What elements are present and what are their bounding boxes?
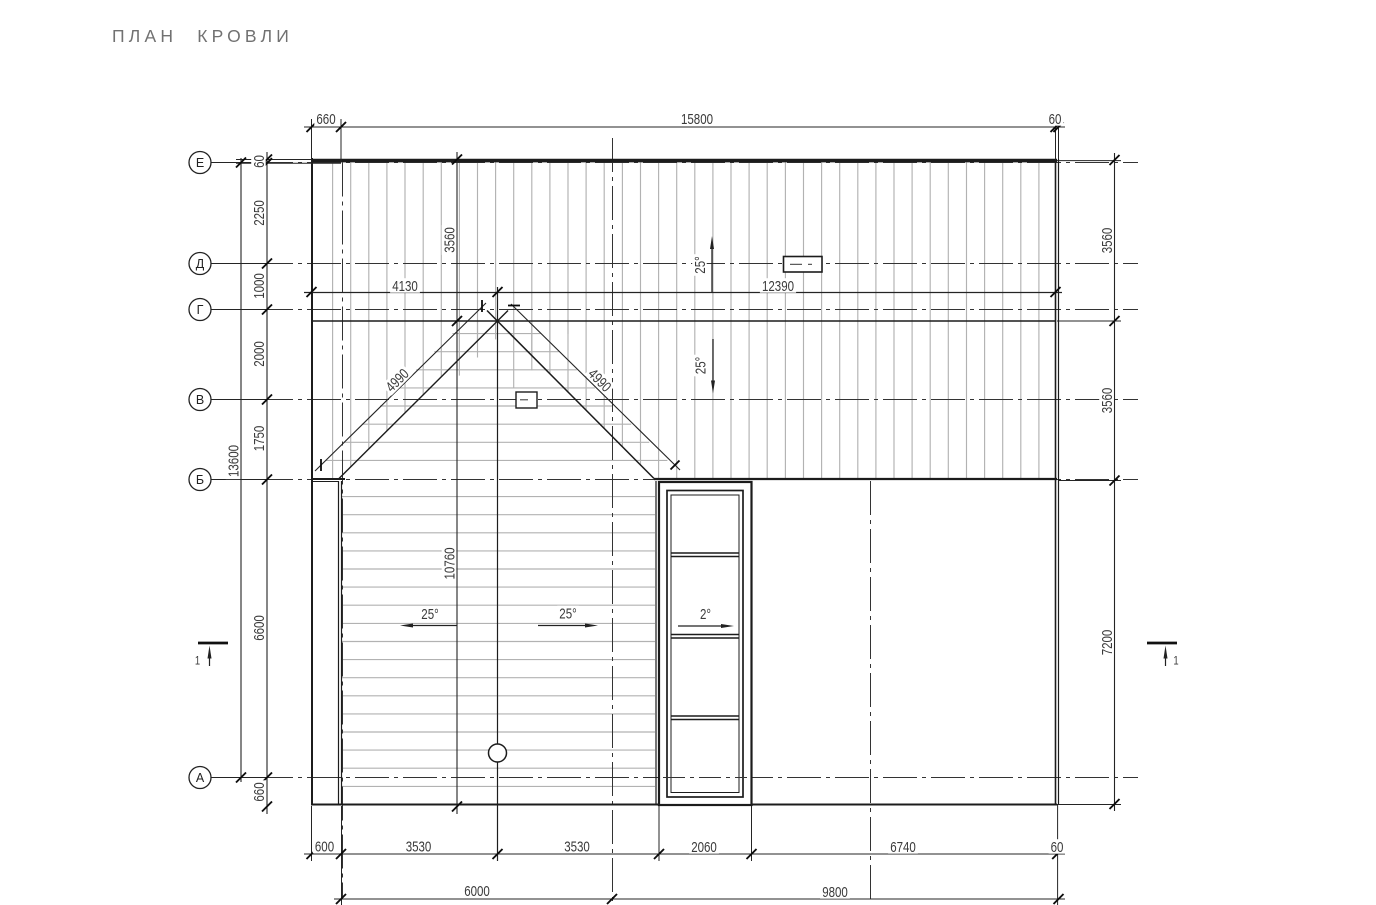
svg-text:Д: Д: [196, 257, 205, 271]
svg-text:6000: 6000: [464, 882, 490, 899]
svg-text:2000: 2000: [250, 341, 267, 367]
svg-text:1750: 1750: [250, 426, 267, 452]
svg-text:60: 60: [250, 155, 267, 168]
svg-text:660: 660: [316, 110, 335, 127]
svg-text:600: 600: [315, 838, 334, 855]
svg-text:25°: 25°: [692, 357, 709, 374]
svg-text:А: А: [196, 771, 205, 785]
svg-text:1: 1: [1173, 654, 1178, 667]
svg-text:2250: 2250: [250, 200, 267, 226]
svg-text:Е: Е: [196, 156, 204, 170]
svg-text:3530: 3530: [564, 838, 590, 855]
svg-text:60: 60: [1051, 838, 1064, 855]
svg-text:12390: 12390: [762, 277, 794, 294]
svg-text:25°: 25°: [691, 256, 708, 273]
svg-text:ПЛАН КРОВЛИ: ПЛАН КРОВЛИ: [112, 26, 293, 46]
svg-text:7200: 7200: [1098, 630, 1115, 656]
svg-text:3560: 3560: [1098, 388, 1115, 414]
svg-text:4130: 4130: [392, 277, 418, 294]
svg-text:Г: Г: [197, 303, 204, 317]
svg-text:9800: 9800: [822, 883, 848, 900]
svg-text:3560: 3560: [441, 227, 458, 253]
svg-text:В: В: [196, 393, 204, 407]
svg-text:2060: 2060: [691, 838, 717, 855]
svg-text:1000: 1000: [250, 273, 267, 299]
svg-text:15800: 15800: [681, 110, 713, 127]
svg-text:13600: 13600: [225, 445, 242, 477]
svg-text:660: 660: [250, 782, 267, 801]
svg-text:6600: 6600: [250, 615, 267, 641]
svg-text:3530: 3530: [406, 838, 432, 855]
svg-text:6740: 6740: [890, 838, 916, 855]
svg-text:Б: Б: [196, 473, 204, 487]
svg-text:25°: 25°: [421, 605, 438, 622]
svg-text:25°: 25°: [559, 605, 576, 622]
svg-text:2°: 2°: [700, 605, 711, 622]
svg-text:3560: 3560: [1098, 228, 1115, 254]
svg-text:1: 1: [195, 654, 200, 667]
svg-text:10760: 10760: [441, 547, 458, 579]
svg-text:60: 60: [1049, 110, 1062, 127]
